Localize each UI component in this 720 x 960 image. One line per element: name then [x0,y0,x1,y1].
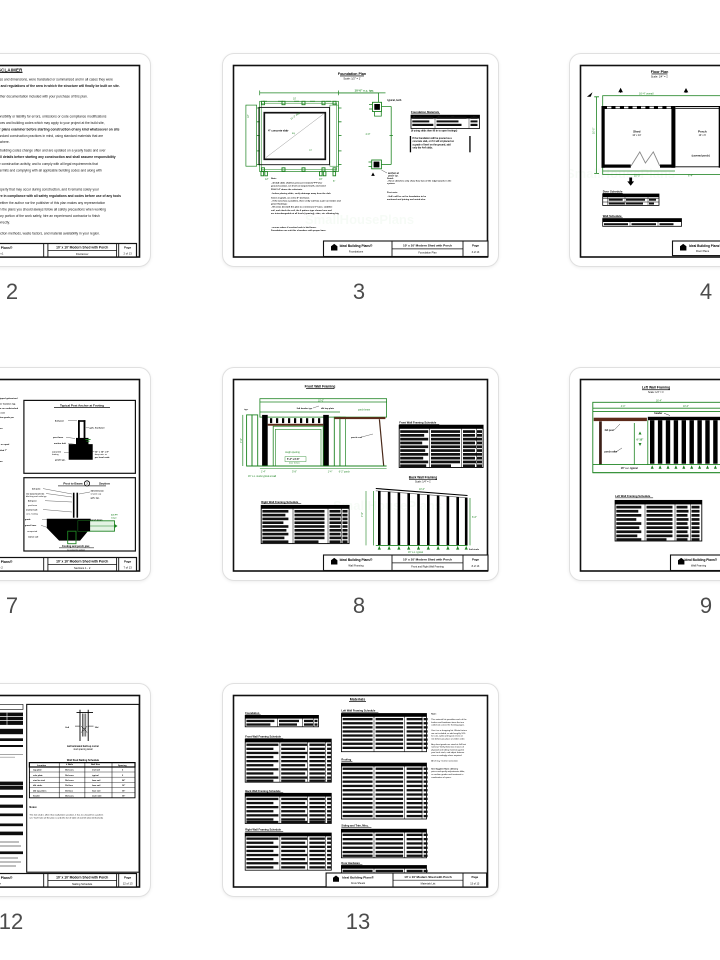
svg-text:obligation to verify that a bu: obligation to verify that a building des… [0,194,121,198]
svg-text:4'-0": 4'-0" [621,406,626,408]
svg-text:Foundation Plan: Foundation Plan [338,72,366,76]
svg-text:for cuts, splits and layout er: for cuts, splits and layout errors on [431,735,464,738]
svg-text:gravel base: gravel base [25,524,37,527]
svg-text:typical, both: typical, both [387,99,402,102]
svg-text:Ideal Building Plans®: Ideal Building Plans® [0,560,13,564]
svg-text:Front and Right Wall Framing: Front and Right Wall Framing [411,565,444,568]
svg-text:face nail: face nail [92,785,101,787]
svg-text:16d com.: 16d com. [65,775,74,777]
svg-text:Footing and porch pier,: Footing and porch pier, [62,545,90,548]
svg-text:6'-4": 6'-4" [688,175,693,178]
svg-text:Crew Sheets: Crew Sheets [351,882,366,885]
svg-text:Disclaimer v1: Disclaimer v1 [0,251,4,255]
svg-text:- these sketches only show how: - these sketches only show how two of th… [387,180,452,183]
svg-text:concrete: concrete [52,450,62,453]
svg-text:sizes accordingly where requir: sizes accordingly where required. [431,754,462,757]
svg-text:Scale: 1/4" = 1': Scale: 1/4" = 1' [415,481,432,484]
svg-text:16": 16" [122,790,125,792]
svg-text:16d com.: 16d com. [65,796,74,798]
svg-text:sole plate: sole plate [33,774,43,777]
svg-text:10'-0": 10'-0" [683,406,689,408]
svg-text:Back Wall Framing Schedule: Back Wall Framing Schedule [245,789,281,793]
svg-text:10d box: 10d box [65,785,74,787]
svg-text:Materials: Materials [350,697,366,701]
svg-text:10'-0": 10'-0" [634,175,640,178]
svg-text:- 5/8" dia anchor bolt embedde: - 5/8" dia anchor bolt embedded 7" [0,449,7,452]
svg-text:rim board and trim: rim board and trim [26,492,45,495]
svg-text:dbl top plate: dbl top plate [321,407,335,410]
svg-text:porch rafter: porch rafter [605,451,618,454]
svg-text:7'-9": 7'-9" [240,438,243,443]
svg-text:typical: typical [92,774,99,777]
svg-text:prices and quality adjustments: prices and quality adjustments differ, [431,770,465,773]
svg-text:- 2x4's will be set for founda: - 2x4's will be set for foundation to be [387,195,427,198]
svg-text:it is the user's obligation to: it is the user's obligation to check wit… [0,127,120,131]
svg-text:Foundations: Foundations [349,250,364,254]
svg-text:4x4 post: 4x4 post [28,500,37,503]
svg-text:8 of 13: 8 of 13 [472,565,480,568]
svg-text:2: 2 [122,770,124,772]
svg-text:Sections 1 - 2: Sections 1 - 2 [74,566,91,570]
svg-text:Back Wall Framing: Back Wall Framing [409,476,437,480]
svg-text:- ensure where if crushed rock: - ensure where if crushed rock is laid l… [271,227,317,229]
svg-text:This material list quantifies: This material list quantifies each of th… [431,718,467,721]
svg-text:Floor Plan: Floor Plan [651,70,669,74]
svg-text:typ.: typ. [244,408,248,411]
svg-text:1'-4": 1'-4" [261,471,266,473]
svg-text:2x4 header typ.: 2x4 header typ. [297,407,313,410]
svg-text:- before placing skids, verify: - before placing skids, verify drainage … [271,192,331,195]
svg-text:Ideal Building Plans®: Ideal Building Plans® [340,558,373,562]
svg-text:Door Hardware: Door Hardware [341,861,360,865]
svg-text:Scale: 1/4" = 1': Scale: 1/4" = 1' [648,391,665,394]
svg-text:- post cap connectors at beam: - post cap connectors at beam [0,460,3,463]
svg-text:combination of spans.: combination of spans. [431,776,452,779]
svg-text:Page: Page [124,875,132,879]
svg-text:Typical Post Anchor at Footing: Typical Post Anchor at Footing [60,404,104,408]
svg-text:material lists in this plan se: material lists in this plan set. Actual … [0,231,100,235]
svg-text:- all 4x4 skids shall be press: - all 4x4 skids shall be pressure treate… [271,182,322,185]
svg-text:a grade of level on the ground: a grade of level on the ground, add [413,143,452,146]
svg-text:licensed architect or engineer: licensed architect or engineer, and we c… [0,114,107,118]
svg-text:anchor bolt: anchor bolt [54,442,66,445]
svg-text:2 of 13: 2 of 13 [123,252,132,256]
svg-text:post base: post base [53,436,64,439]
svg-text:called out across the framing: called out across the framing pages. [431,724,465,727]
svg-text:Location: Location [37,764,47,767]
svg-text:converted from the original te: converted from the original template so … [0,84,120,88]
svg-text:4'-0": 4'-0" [366,133,371,136]
svg-text:3 of 13: 3 of 13 [472,251,480,254]
svg-text:This plan set is a downloadabl: This plan set is a downloadable PDF. Whe… [0,77,113,81]
svg-text:top plate: top plate [33,769,43,772]
svg-text:w/ post cap: w/ post cap [91,492,102,495]
svg-text:of any requirements for comply: of any requirements for complying with a… [0,121,105,125]
svg-text:Ideal Building Plans®: Ideal Building Plans® [0,246,13,250]
svg-text:10' x 6': 10' x 6' [699,134,707,137]
svg-text:guide to the model, please con: guide to the model, please consult "Dire… [0,94,88,98]
svg-text:ledger: ledger [111,516,117,519]
svg-text:Disclaimer: Disclaimer [76,252,89,256]
svg-text:site before you place a lumber: site before you place a lumber order. [431,737,465,740]
svg-text:10'-0": 10'-0" [318,400,324,402]
svg-text:Right Wall Framing Schedule: Right Wall Framing Schedule [261,500,299,504]
svg-text:deep min. or: deep min. or [95,453,107,456]
svg-text:See Supplier Note: delivery: See Supplier Note: delivery [431,767,459,770]
svg-text:Ideal Building Plans®: Ideal Building Plans® [342,875,374,879]
svg-text:# Nails: # Nails [66,764,74,766]
svg-text:2x6 joist: 2x6 joist [32,487,41,490]
svg-text:10d box: 10d box [65,790,74,792]
svg-text:readily available at most lumb: readily available at most lumber yards a… [0,140,10,144]
svg-text:grade typ.: grade typ. [55,458,66,461]
svg-text:your local stock, and adjust f: your local stock, and adjust fastener [431,751,464,754]
svg-text:and use of this plan, we canno: and use of this plan, we cannot and do n… [0,149,106,153]
svg-text:dbl studs: dbl studs [33,784,43,787]
svg-text:Notes:: Notes: [29,806,37,809]
svg-text:apply to your construction pro: apply to your construction project, incl… [0,168,102,172]
svg-text:7'-9": 7'-9" [361,512,364,517]
svg-text:Ideal Building Plans®: Ideal Building Plans® [689,244,720,248]
svg-text:Note:: Note: [271,177,277,180]
svg-text:First note:: First note: [387,191,398,194]
svg-text:revisions. Therefore, you and/: revisions. Therefore, you and/or your bu… [0,155,116,159]
svg-text:header: header [654,412,662,415]
svg-text:Spacing: Spacing [118,765,127,767]
svg-text:door below: door below [289,462,300,465]
svg-text:Nailing Schedule: Nailing Schedule [72,882,93,886]
svg-text:16": 16" [319,178,323,181]
svg-text:Any sheet goods are sized at 4: Any sheet goods are sized at 4x8 feet [431,743,466,746]
svg-text:16" o.c. typical: 16" o.c. typical [621,467,638,470]
svg-text:10' x 10' Modern Shed with Por: 10' x 10' Modern Shed with Porch [403,244,452,248]
svg-text:Left Wall Framing Schedule: Left Wall Framing Schedule [341,709,375,713]
svg-text:FULLY 4" above the substrate.: FULLY 4" above the substrate. [271,188,303,191]
svg-text:4x4 post: 4x4 post [605,429,615,432]
svg-text:Wall Framing: Wall Framing [691,564,707,568]
svg-text:stud to stud: stud to stud [33,779,46,782]
svg-text:10'-0": 10'-0" [419,489,425,491]
svg-text:or to a professional in that f: or to a professional in that field. This… [0,134,103,138]
svg-text:Page: Page [471,875,478,879]
svg-text:native soil: native soil [28,536,39,539]
svg-text:footing: footing [52,453,59,456]
svg-text:16'-4": 16'-4" [656,400,662,402]
svg-text:frame at grade, on a 4 to 6" b: frame at grade, on a 4 to 6" bed base. [271,197,310,200]
svg-text:Siding and Trim, Misc.: Siding and Trim, Misc. [341,824,369,828]
svg-text:5'-4" x 6'-8": 5'-4" x 6'-8" [287,458,299,461]
svg-text:- if the area has a problem, t: - if the area has a problem, then verify… [271,199,341,202]
svg-text:Left Wall Framing: Left Wall Framing [642,386,670,390]
svg-text:rough opening: rough opening [285,451,300,454]
svg-text:lumber and hardware items that: lumber and hardware items that are [431,721,465,724]
svg-text:header: header [33,795,40,798]
svg-text:The 2x4 stud is often than wal: The 2x4 stud is often than wall plates' … [29,813,104,816]
svg-text:6'-6": 6'-6" [472,516,477,519]
svg-text:4x4 post: 4x4 post [55,419,64,422]
svg-text:Materials List: Materials List [421,883,436,886]
svg-text:Foundation: Foundation [245,711,260,715]
svg-text:16" o.c. typical: 16" o.c. typical [408,551,423,554]
svg-text:anchor bolt: anchor bolt [26,508,38,511]
svg-text:Sections 1-2: Sections 1-2 [0,565,3,569]
svg-text:dbl 2x6 beam: dbl 2x6 beam [91,491,104,493]
svg-text:stud spacing detail: stud spacing detail [73,748,93,751]
svg-text:Front Wall Framing Schedule: Front Wall Framing Schedule [245,735,281,739]
svg-text:16": 16" [122,796,125,798]
svg-text:set. You'll note all the plan: set. You'll note all the plan is and (th… [29,816,103,819]
svg-text:gravel footings:: gravel footings: [271,203,288,206]
svg-text:1'-4": 1'-4" [328,471,333,473]
svg-text:Scale: 1/2" = 1': Scale: 1/2" = 1' [343,77,361,81]
svg-text:10': 10' [293,98,297,101]
svg-text:(covered porch): (covered porch) [692,155,710,158]
svg-text:10'-0" o.c. typ.: 10'-0" o.c. typ. [355,89,375,93]
svg-text:10'-0": 10'-0" [592,128,595,134]
svg-text:10' x 10' Modern Shed with Por: 10' x 10' Modern Shed with Porch [56,876,108,880]
svg-text:- Simpson ABU44 post base or e: - Simpson ABU44 post base or equal [0,443,10,446]
svg-text:porch beam: porch beam [358,409,370,412]
svg-text:Note:: Note: [431,713,437,716]
svg-text:12": 12" [265,178,269,181]
svg-text:Foundation can suit this elsew: Foundation can suit this elsewhere with … [271,229,327,232]
svg-text:SmallHousePlans: SmallHousePlans [570,166,675,181]
svg-text:16d: 16d [95,727,99,729]
svg-text:2x4: 2x4 [65,726,69,729]
svg-text:16": 16" [122,785,125,787]
svg-text:Ideal Building Plans®: Ideal Building Plans® [685,558,718,562]
svg-text:24": 24" [122,779,125,782]
svg-text:5'-8": 5'-8" [292,471,297,473]
svg-text:Front Wall Framing: Front Wall Framing [305,384,336,388]
svg-text:7 of 13: 7 of 13 [123,566,132,570]
svg-text:Scale: 1/4" = 1': Scale: 1/4" = 1' [651,74,669,78]
svg-text:Front Wall Framing Schedule: Front Wall Framing Schedule [399,420,437,424]
svg-text:- verify all post hardware siz: - verify all post hardware sizes [0,427,4,430]
svg-text:or materials on the safety pro: or materials on the safety procedures pr… [0,201,105,205]
svg-text:12 of 13: 12 of 13 [123,882,133,886]
svg-text:Porch: Porch [698,129,707,133]
svg-text:16" o.c. studs typical at wall: 16" o.c. studs typical at wall [248,475,277,478]
svg-text:soil, and check the soil, the: soil, and check the soil, the 6 pattern … [271,209,332,212]
svg-text:galv. hardware: galv. hardware [90,428,106,430]
svg-text:porch roof: porch roof [351,437,362,439]
svg-text:no concrete option: no concrete option [67,548,86,551]
svg-text:Use it as a shopping list. Was: Use it as a shopping list. Waste factors [431,729,467,732]
svg-text:nominal. Verify thickness choi: nominal. Verify thickness choices of [431,746,464,749]
svg-text:Wall Framing: Wall Framing [348,564,364,568]
svg-text:Detail:: Detail: [387,177,394,180]
svg-text:Wall Stud Nailing Schedule: Wall Stud Nailing Schedule [67,759,100,762]
svg-text:If the foundation will be pour: If the foundation will be poured as a [413,137,453,140]
svg-text:dbl top plates: dbl top plates [33,789,47,792]
svg-text:10' x 10' Modern Shed with Por: 10' x 10' Modern Shed with Porch [404,875,452,879]
svg-text:2: 2 [122,775,124,777]
svg-text:Page: Page [472,557,479,561]
svg-text:2x4 studs: 2x4 studs [469,548,480,551]
svg-text:Nail Size: Nail Size [91,764,101,766]
svg-text:16d com.: 16d com. [65,780,74,782]
svg-text:Foundation Materials: Foundation Materials [411,110,440,114]
svg-text:10' x 10' Modern Shed with Por: 10' x 10' Modern Shed with Porch [56,560,108,564]
svg-text:ground contact, set level on t: ground contact, set level on tamped eart… [271,184,326,187]
svg-text:plywood and siding material ag: plywood and siding material against [431,748,464,751]
svg-text:end nail: end nail [92,770,100,772]
svg-text:2x6 PT: 2x6 PT [111,515,118,517]
svg-text:6'-10": 6'-10" [637,438,645,441]
svg-text:behind a verified contractor t: behind a verified contractor to insure t… [0,221,10,225]
svg-text:6'-2" porch: 6'-2" porch [339,470,351,473]
svg-text:- concrete footings shall bear: - concrete footings shall bear on undist… [0,407,19,410]
svg-text:each side: each side [92,796,102,798]
svg-text:Post to Beam: Post to Beam [63,482,83,486]
svg-text:10' x 10': 10' x 10' [632,134,641,137]
svg-text:face nail: face nail [92,780,101,782]
svg-text:12" x 12" x 8": 12" x 12" x 8" [95,451,109,453]
svg-text:- fill areas beneath the plan: - fill areas beneath the plan to a minim… [271,205,333,208]
svg-text:10' x 10' Modern Shed with Por: 10' x 10' Modern Shed with Porch [56,246,108,250]
svg-text:Page: Page [472,243,479,247]
svg-text:with the good safety practices: with the good safety practices. In the e… [0,214,100,218]
svg-text:conc. footing: conc. footing [26,513,39,516]
svg-text:native soil, verify bearing on: native soil, verify bearing on site [0,412,6,415]
svg-text:or warranty of any kind, with: or warranty of any kind, with respect to… [0,207,106,211]
svg-text:galv. typ.: galv. typ. [91,497,100,500]
svg-text:Right Wall Framing Schedule: Right Wall Framing Schedule [245,828,281,832]
svg-text:compacted: compacted [27,530,38,533]
svg-text:you are our ability to a respo: you are our ability to a responsible for… [0,188,100,192]
svg-text:Ideal Building Plans®: Ideal Building Plans® [0,876,13,880]
svg-text:- minimum footing depth below: - minimum footing depth below grade per [0,416,14,419]
svg-text:All of may I not be sectioned.: All of may I not be sectioned. [431,759,458,762]
svg-text:concrete slab, or if it will s: concrete slab, or if it will sit placed … [413,140,455,143]
svg-text:4" concrete slab: 4" concrete slab [268,129,289,133]
svg-text:per local code: per local code [95,457,110,459]
svg-text:Section: Section [99,482,110,486]
svg-text:- all fasteners shall be hot d: - all fasteners shall be hot dipped galv… [0,397,18,400]
svg-text:Left Wall Framing Schedule: Left Wall Framing Schedule [615,494,651,498]
svg-text:13 of 13: 13 of 13 [470,882,480,885]
svg-text:16'-4" overall: 16'-4" overall [639,93,654,96]
svg-text:sq.: sq. [292,132,296,135]
svg-text:Foundation Plan: Foundation Plan [418,251,437,254]
svg-text:2: 2 [86,483,88,486]
svg-text:porch beam: porch beam [91,518,103,521]
svg-text:grade: grade [25,518,32,521]
svg-text:are not included, so add rough: are not included, so add roughly 10% [431,732,465,735]
svg-text:so confirm grades and treatmen: so confirm grades and treatment in [431,773,464,776]
svg-text:anchored and joining and noted: anchored and joining and noted also. [387,198,426,201]
svg-text:sizes and dimensions contained: sizes and dimensions contained within a … [0,162,98,166]
svg-text:face nail: face nail [92,790,101,792]
svg-text:are interchangeable at all lev: are interchangeable at all levels (spaci… [271,212,339,215]
svg-text:Shed: Shed [633,129,641,133]
svg-text:16d com.: 16d com. [65,770,74,772]
svg-text:Floor Plans: Floor Plans [696,249,710,253]
svg-text:12": 12" [247,114,250,118]
svg-text:(if using skids then fill in t: (if using skids then fill in to open foo… [411,130,458,133]
svg-text:system.: system. [387,182,396,185]
svg-text:blocking each side typ.: blocking each side typ. [26,495,47,498]
svg-text:Roofing: Roofing [341,758,351,762]
svg-text:Door Schedule: Door Schedule [603,189,623,193]
svg-text:Page: Page [124,559,132,563]
svg-text:Page: Page [124,245,132,249]
svg-text:only the 4x4 skids.: only the 4x4 skids. [413,147,434,150]
svg-text:Wall Schedule: Wall Schedule [603,214,622,218]
svg-text:10': 10' [309,149,313,152]
svg-text:10' x 10' Modern Shed with Por: 10' x 10' Modern Shed with Porch [403,558,452,562]
svg-text:6": 6" [333,180,335,183]
svg-text:- anchor posts at every corner: - anchor posts at every corner location … [0,403,16,406]
svg-text:post base: post base [28,504,38,507]
svg-text:nail laminated built-up corner: nail laminated built-up corner [67,745,99,748]
svg-text:Ideal Building Plans®: Ideal Building Plans® [340,244,373,248]
